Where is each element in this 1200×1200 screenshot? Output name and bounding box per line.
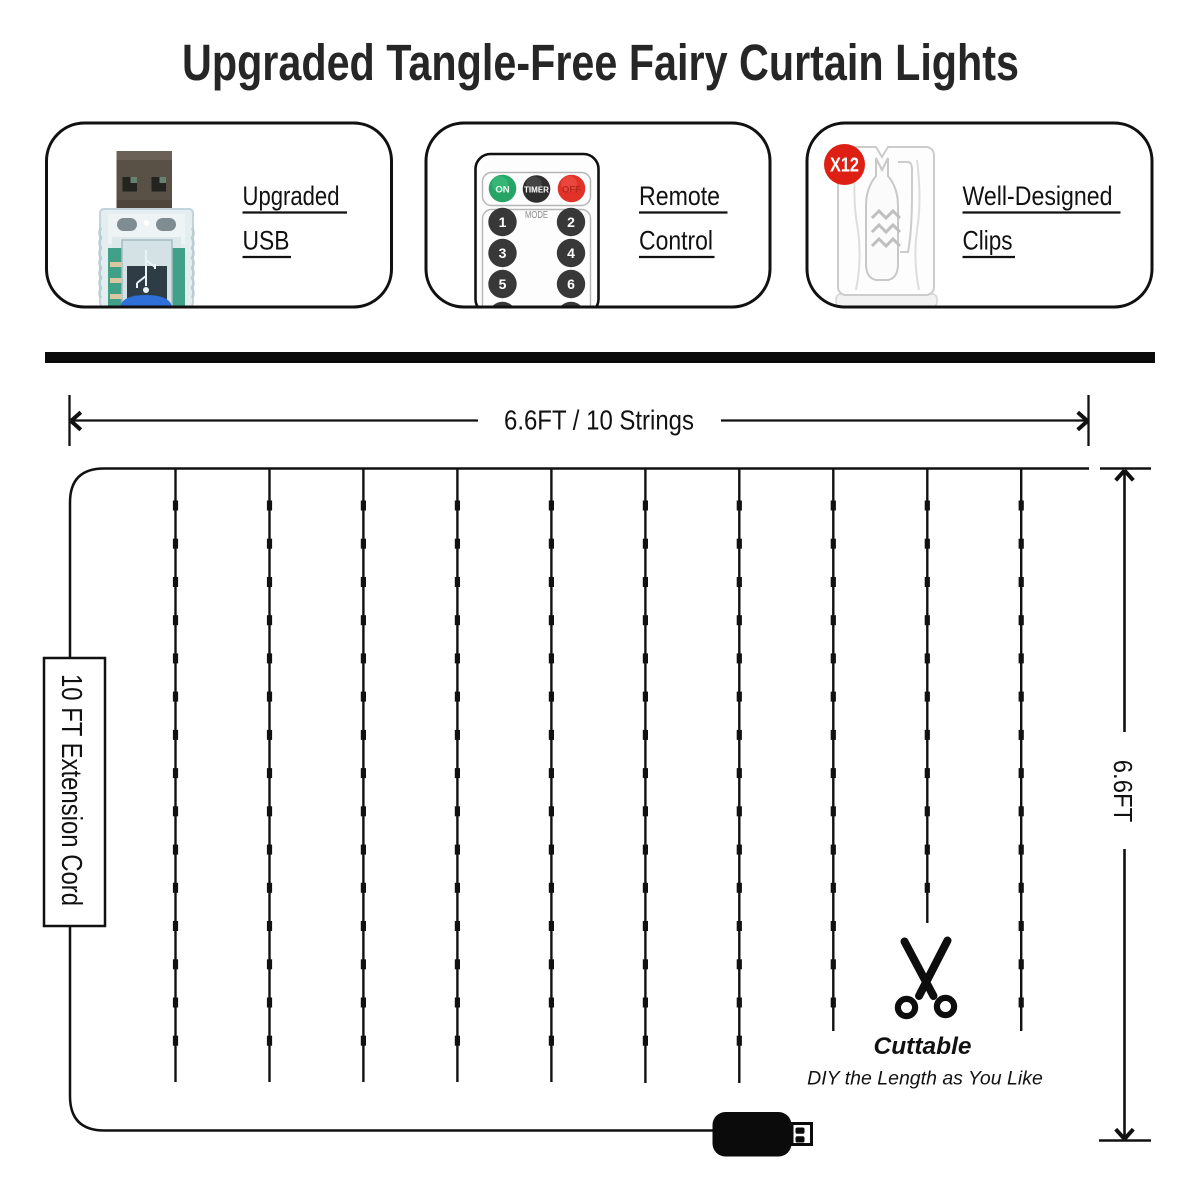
svg-text:OFF: OFF	[562, 185, 581, 196]
svg-text:Clips: Clips	[963, 226, 1013, 256]
svg-text:X12: X12	[830, 155, 859, 177]
svg-text:6.6FT / 10 Strings: 6.6FT / 10 Strings	[504, 405, 694, 436]
svg-text:4: 4	[567, 245, 575, 261]
svg-text:2: 2	[567, 214, 575, 230]
svg-text:6.6FT: 6.6FT	[1108, 760, 1136, 823]
svg-text:Upgraded Tangle-Free Fairy Cur: Upgraded Tangle-Free Fairy Curtain Light…	[182, 34, 1019, 91]
svg-text:5: 5	[499, 276, 507, 292]
svg-text:3: 3	[499, 245, 507, 261]
svg-text:Remote: Remote	[639, 181, 720, 211]
svg-text:TIMER: TIMER	[524, 186, 549, 195]
svg-text:ON: ON	[495, 185, 509, 196]
svg-text:Upgraded: Upgraded	[243, 181, 340, 211]
svg-text:10 FT Extension Cord: 10 FT Extension Cord	[55, 674, 87, 906]
svg-text:USB: USB	[243, 226, 290, 256]
svg-text:Control: Control	[639, 226, 713, 256]
svg-text:Well-Designed: Well-Designed	[963, 181, 1113, 211]
svg-text:DIY the Length as You Like: DIY the Length as You Like	[807, 1068, 1043, 1090]
svg-text:6: 6	[567, 276, 575, 292]
svg-text:MODE: MODE	[525, 209, 548, 221]
svg-text:Cuttable: Cuttable	[874, 1033, 972, 1060]
svg-text:1: 1	[499, 214, 507, 230]
